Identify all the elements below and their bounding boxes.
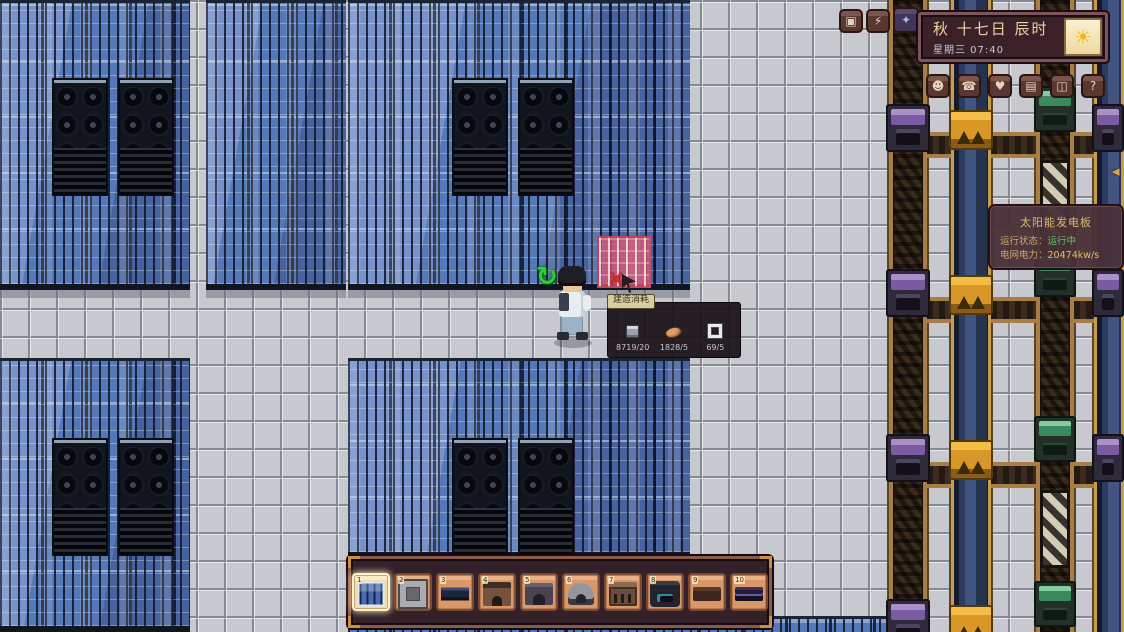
battery-unit	[452, 438, 508, 556]
slot-number: 10	[734, 576, 745, 584]
energy-button[interactable]: ⚡	[866, 9, 890, 33]
building-name: 太阳能发电板	[1000, 214, 1112, 230]
conveyor-connector[interactable]	[1074, 462, 1094, 488]
battery-unit	[452, 78, 508, 196]
slot-number: 8	[650, 576, 656, 584]
slot-number: 1	[356, 576, 362, 584]
slot-number: 7	[608, 576, 614, 584]
cost-count: 1828/5	[660, 343, 688, 352]
battery-unit	[52, 438, 108, 556]
hotbar-slot-4[interactable]: 4	[478, 573, 516, 611]
conveyor-connector[interactable]	[1074, 132, 1094, 158]
battery-bank[interactable]	[52, 78, 174, 196]
splitter-machine[interactable]	[1092, 104, 1124, 152]
wood-slab-item-icon	[693, 587, 721, 601]
splitter-machine[interactable]	[1092, 269, 1124, 317]
filter-machine[interactable]	[1034, 416, 1076, 462]
hotbar-slot-3[interactable]: 3	[436, 573, 474, 611]
splitter-machine[interactable]	[886, 434, 930, 482]
status-row: 运行状态：运行中	[1000, 235, 1112, 249]
weekday-time: 星期三 07:40	[933, 41, 1062, 56]
hotbar-slot-7[interactable]: 7	[604, 573, 642, 611]
cost-item: 1828/5	[653, 327, 694, 352]
character-shoe	[557, 332, 569, 340]
furnace-item-icon	[483, 582, 511, 606]
heart-icon: ♥	[995, 79, 1006, 93]
hotbar-slot-1[interactable]: 1	[352, 573, 390, 611]
hotbar-slot-5[interactable]: 5	[520, 573, 558, 611]
dome-machine-item-icon	[568, 583, 594, 605]
splitter-machine[interactable]	[886, 599, 930, 632]
splitter-machine[interactable]	[886, 104, 930, 152]
inventory-menu-button[interactable]: ◫	[1050, 74, 1074, 98]
conveyor-connector[interactable]	[991, 462, 1036, 488]
cost-item: 69/5	[695, 324, 736, 352]
character-arm	[583, 295, 591, 310]
stone-block-icon	[626, 325, 639, 338]
status-label: 运行状态：	[1000, 236, 1048, 247]
lightning-icon: ⚡	[874, 14, 882, 28]
battery-unit	[52, 78, 108, 196]
splitter-machine[interactable]	[886, 269, 930, 317]
battery-unit	[118, 438, 174, 556]
hazard-stripe-tile	[1040, 490, 1070, 568]
panel-slab-item-icon	[441, 587, 469, 600]
hotbar-slot-2[interactable]: 2	[394, 573, 432, 611]
conveyor-connector[interactable]	[991, 132, 1036, 158]
conveyor-connector[interactable]	[991, 297, 1036, 323]
hotbar: 1 2 3 4 5 6 7 8	[348, 556, 772, 628]
gem-button[interactable]: ✦	[893, 7, 919, 33]
help-menu-button[interactable]: ?	[1081, 74, 1105, 98]
hotbar-ornament	[348, 616, 360, 628]
power-row: 电网电力：20474kw/s	[1000, 249, 1112, 263]
battery-unit	[518, 438, 574, 556]
slot-number: 4	[482, 576, 488, 584]
sun-icon: ☀	[1074, 25, 1092, 49]
player-character	[550, 266, 596, 350]
gem-icon: ✦	[901, 13, 911, 27]
hotbar-ornament	[348, 556, 360, 568]
conveyor-connector[interactable]	[1074, 297, 1094, 323]
glass-frame-icon	[708, 324, 722, 338]
social-menu-button[interactable]: ♥	[988, 74, 1012, 98]
status-value: 运行中	[1048, 236, 1077, 247]
catalog-menu-button[interactable]: ▤	[1019, 74, 1043, 98]
generator-item-icon	[650, 581, 680, 607]
hopper-machine[interactable]	[949, 110, 993, 150]
conveyor-connector[interactable]	[927, 297, 951, 323]
cost-item: 8719/20	[612, 325, 653, 352]
filter-machine[interactable]	[1034, 581, 1076, 627]
hotbar-slot-6[interactable]: 6	[562, 573, 600, 611]
game-viewport: ◂ ↻ × 建造消耗 8719/20 1828/5 69/5 太阳能发电板	[0, 0, 1124, 632]
hotbar-ornament	[760, 616, 772, 628]
splitter-machine[interactable]	[1092, 434, 1124, 482]
phone-menu-button[interactable]: ☎	[957, 74, 981, 98]
date-panel: 秋 十七日 辰时 星期三 07:40 ☀	[918, 12, 1108, 62]
solar-array-top-mid-left[interactable]	[206, 0, 346, 290]
hotbar-ornament	[760, 556, 772, 568]
power-label: 电网电力：	[1000, 250, 1048, 261]
conveyor-connector[interactable]	[927, 462, 951, 488]
solar-panel-item-icon	[358, 581, 385, 606]
copper-ingot-icon	[664, 325, 683, 340]
hotbar-slot-8[interactable]: 8	[646, 573, 684, 611]
character-shoe	[576, 332, 588, 340]
bag-icon: ◫	[1056, 79, 1067, 93]
slot-number: 9	[692, 576, 698, 584]
game-date: 秋 十七日 辰时	[933, 18, 1062, 39]
press-machine-item-icon	[525, 583, 553, 605]
character-hair	[558, 266, 586, 286]
phone-icon: ☎	[962, 79, 977, 93]
hopper-machine[interactable]	[949, 605, 993, 632]
stone-frame-item-icon	[400, 581, 426, 607]
hotbar-slot-10[interactable]: 10	[730, 573, 768, 611]
battery-bank[interactable]	[452, 78, 574, 196]
conveyor-slab-item-icon	[735, 587, 763, 601]
date-texts: 秋 十七日 辰时 星期三 07:40	[921, 16, 1064, 58]
build-cost-tooltip: 8719/20 1828/5 69/5	[607, 302, 741, 358]
slot-number: 5	[524, 576, 530, 584]
ornament-icon: ▣	[845, 14, 856, 28]
hotbar-slot-9[interactable]: 9	[688, 573, 726, 611]
weather-box: ☀	[1064, 18, 1102, 56]
build-cost-label: 建造消耗	[607, 294, 655, 309]
slot-number: 2	[398, 576, 404, 584]
battery-bank[interactable]	[452, 438, 574, 556]
hopper-machine[interactable]	[949, 440, 993, 480]
power-value: 20474kw/s	[1048, 250, 1100, 261]
person-icon: ☻	[932, 79, 945, 93]
slot-number: 6	[566, 576, 572, 584]
battery-bank[interactable]	[52, 438, 174, 556]
character-strap	[559, 293, 569, 311]
building-info-tooltip: 太阳能发电板 运行状态：运行中 电网电力：20474kw/s	[988, 204, 1124, 270]
character-menu-button[interactable]: ☻	[926, 74, 950, 98]
conveyor-connector[interactable]	[927, 132, 951, 158]
ornament-button[interactable]: ▣	[839, 9, 863, 33]
slot-number: 3	[440, 576, 446, 584]
cost-count: 69/5	[706, 343, 724, 352]
cost-count: 8719/20	[616, 343, 649, 352]
book-icon: ▤	[1025, 79, 1036, 93]
edge-collapse-arrow-icon[interactable]: ◂	[1112, 162, 1120, 180]
battery-unit	[518, 78, 574, 196]
question-mark-icon: ?	[1090, 79, 1096, 93]
battery-unit	[118, 78, 174, 196]
hopper-machine[interactable]	[949, 275, 993, 315]
gate-machine-item-icon	[609, 582, 637, 606]
